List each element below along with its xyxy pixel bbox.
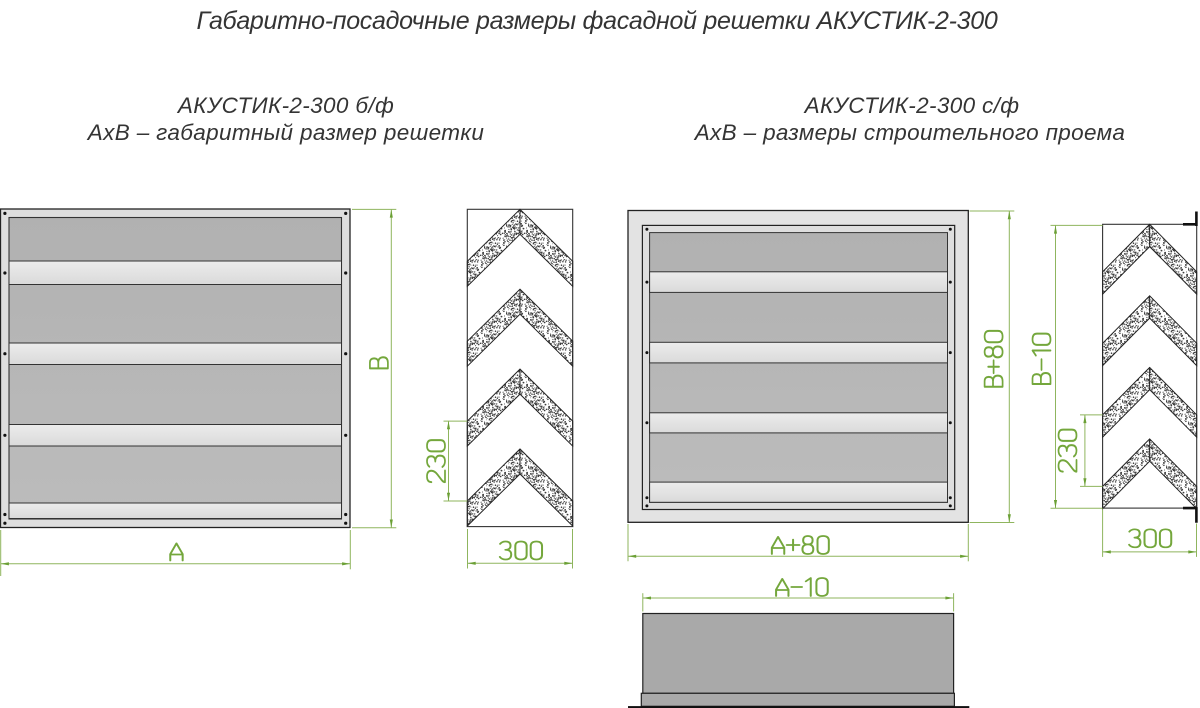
svg-text:АхВ – габаритный размер решетк: АхВ – габаритный размер решетки — [86, 120, 485, 145]
svg-text:Габаритно-посадочные размеры ф: Габаритно-посадочные размеры фасадной ре… — [196, 7, 997, 35]
svg-text:АКУСТИК-2-300 с/ф: АКУСТИК-2-300 с/ф — [803, 93, 1020, 118]
svg-text:АКУСТИК-2-300 б/ф: АКУСТИК-2-300 б/ф — [176, 93, 394, 118]
svg-text:АхВ – размеры строительного пр: АхВ – размеры строительного проема — [693, 120, 1126, 145]
